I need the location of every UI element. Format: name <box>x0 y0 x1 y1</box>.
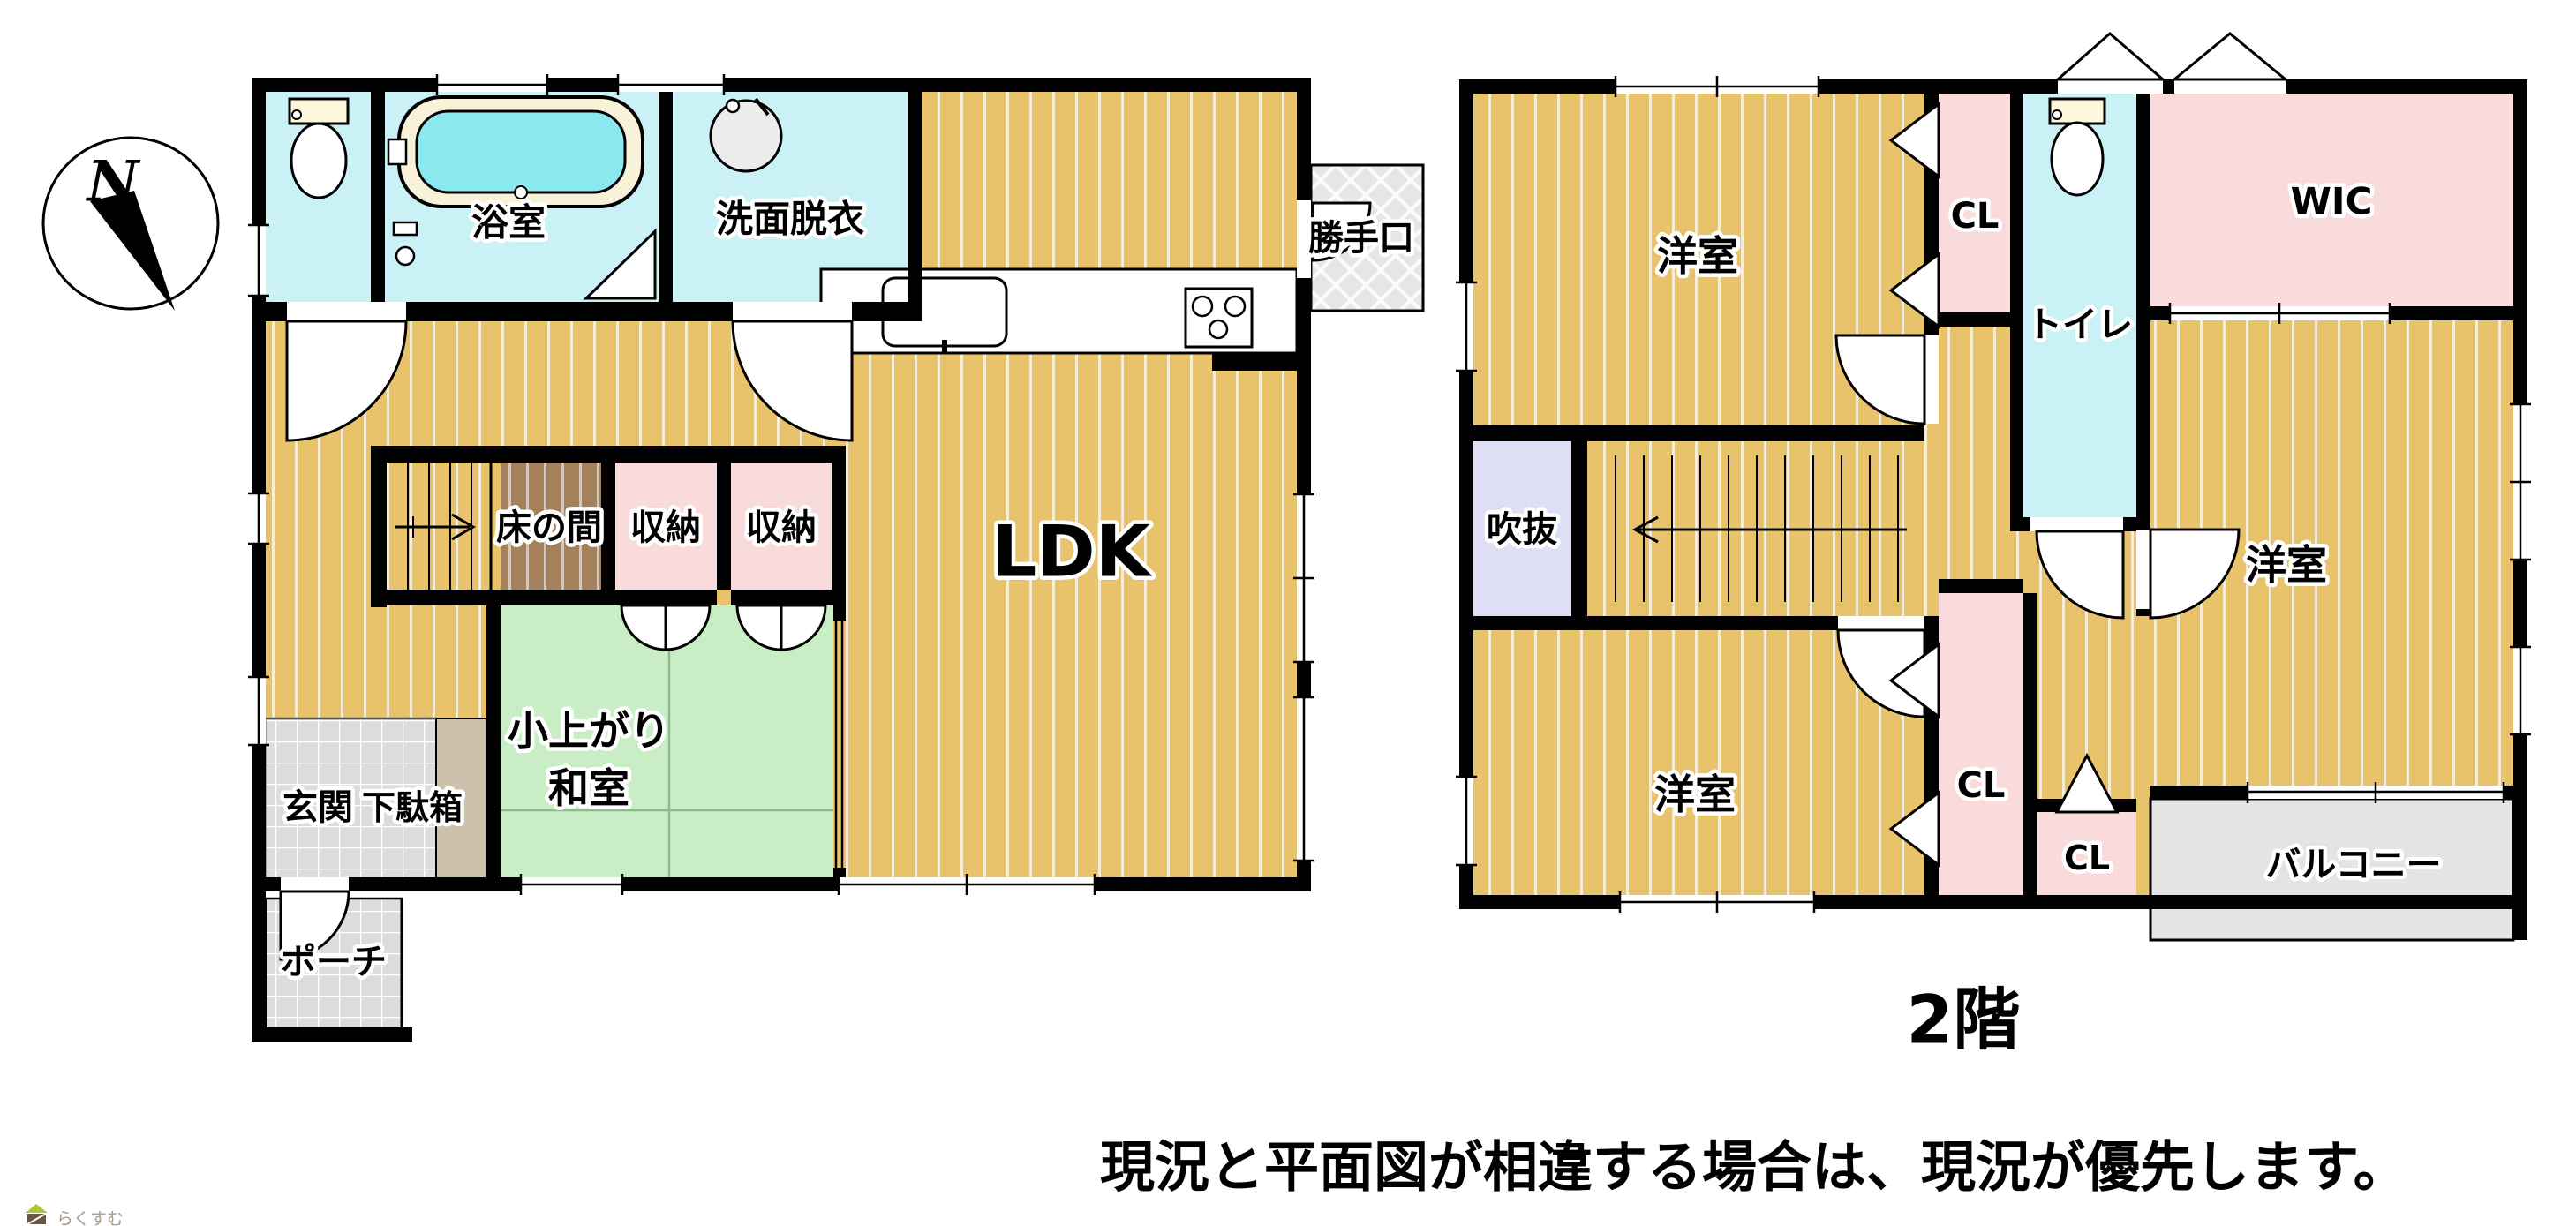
stove-icon <box>1186 289 1252 347</box>
floor2-caption: 2階 <box>1907 981 2021 1059</box>
brand-text: らくすむ <box>56 1209 124 1226</box>
toilet-fixture-2f-icon <box>2050 99 2105 195</box>
label-bedroom-nw: 洋室 <box>1657 232 1738 280</box>
label-closet-small: CL <box>2064 839 2110 877</box>
label-bath: 浴室 <box>471 201 546 244</box>
floorplan-canvas: N <box>0 0 2576 1226</box>
label-bedroom-sw: 洋室 <box>1654 771 1736 818</box>
balcony-side-wall <box>2513 902 2527 940</box>
floor2-plan: 洋室 CL トイレ WIC 吹抜 洋室 CL CL 洋室 バルコニー <box>1456 34 2531 940</box>
label-storage-b: 収納 <box>746 508 817 548</box>
bathtub-icon <box>388 97 643 207</box>
floorplan-page: N <box>0 0 2576 1226</box>
label-storage-a: 収納 <box>630 508 701 548</box>
label-tatami-line2: 和室 <box>548 764 629 812</box>
label-kitchen-door: 勝手口 <box>1308 218 1414 259</box>
label-entrance: 玄関 <box>282 787 353 828</box>
label-washroom: 洗面脱衣 <box>716 198 864 241</box>
label-shoe-cabinet: 下駄箱 <box>362 788 463 827</box>
label-bedroom-e: 洋室 <box>2246 541 2327 589</box>
compass: N <box>43 138 218 311</box>
label-tatami-line1: 小上がり <box>508 707 670 755</box>
label-tokonoma: 床の間 <box>496 508 602 548</box>
washbasin-icon <box>711 99 781 171</box>
label-porch: ポーチ <box>281 942 387 982</box>
label-wic: WIC <box>2291 180 2373 223</box>
label-balcony: バルコニー <box>2265 845 2441 885</box>
label-ldk: LDK <box>991 511 1152 593</box>
toilet-fixture-1f-icon <box>290 99 348 198</box>
label-closet-top: CL <box>1951 196 2000 237</box>
label-toilet-2f: トイレ <box>2027 305 2133 345</box>
room-closet-tall <box>1939 593 2023 895</box>
label-closet-tall: CL <box>1957 765 2006 806</box>
label-void: 吹抜 <box>1487 509 1557 550</box>
disclaimer-text: 現況と平面図が相違する場合は、現況が優先します。 <box>1100 1135 2408 1200</box>
